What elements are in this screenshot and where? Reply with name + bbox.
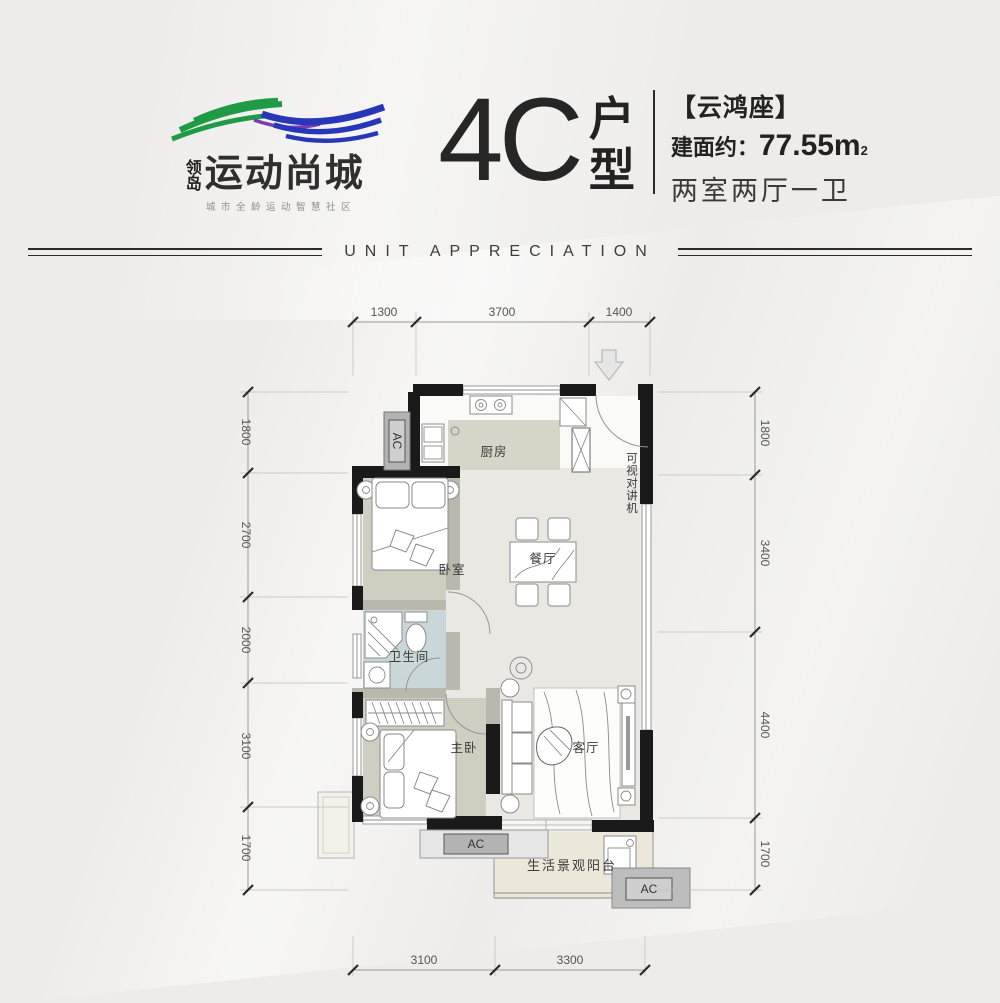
ac-label: AC (641, 882, 658, 896)
dim-left-4: 3100 (239, 733, 253, 760)
ac-label: AC (468, 837, 485, 851)
area-prefix: 建面约： (671, 130, 759, 162)
unit-title-block: 4C 户 型 【云鸿座】 建面约： 77.55m 2 两室两厅一卫 (438, 86, 868, 208)
intercom-label: 可视对讲机 (621, 452, 637, 532)
unit-info: 【云鸿座】 建面约： 77.55m 2 两室两厅一卫 (671, 86, 868, 208)
dim-right-1: 1800 (758, 420, 772, 447)
ac-platform-bottom-right: AC (612, 868, 690, 908)
dim-right-3: 4400 (758, 712, 772, 739)
balcony-sliding-door (500, 820, 592, 830)
label-master: 主卧 (450, 741, 477, 755)
dim-right: 1800 3400 4400 1700 (658, 387, 772, 895)
logo-name-text: 运动尚城 (205, 155, 365, 193)
area-superscript: 2 (861, 143, 868, 158)
dim-top-1: 1300 (371, 305, 398, 319)
logo-wave-icon (168, 92, 393, 148)
entry-arrow-icon (595, 350, 623, 380)
room-layout-desc: 两室两厅一卫 (671, 169, 868, 208)
banner-text: UNIT APPRECIATION (344, 243, 656, 261)
brand-logo: 领岛 运动尚城 城市全龄运动智慧社区 (168, 92, 408, 213)
ac-platform-bottom-left: AC (420, 830, 548, 858)
building-name: 【云鸿座】 (671, 88, 868, 124)
label-balcony: 生活景观阳台 (527, 858, 617, 873)
section-banner: UNIT APPRECIATION (0, 243, 1000, 261)
dim-left-1: 1800 (239, 419, 253, 446)
dim-bottom-2: 3300 (557, 953, 584, 967)
banner-line-left (28, 248, 322, 256)
dim-left-2: 2700 (239, 522, 253, 549)
unit-code: 4C (438, 86, 579, 195)
floor-plan: AC AC AC 厨房 卧室 餐厅 卫生间 主卧 客厅 生活景观阳台 (225, 290, 800, 990)
dim-right-4: 1700 (758, 841, 772, 868)
unit-type-label: 户 型 (589, 94, 635, 195)
label-bedroom: 卧室 (438, 562, 465, 577)
dim-right-2: 3400 (758, 540, 772, 567)
ac-label: AC (390, 433, 404, 450)
dim-bottom: 3100 3300 (348, 936, 650, 976)
dim-left-3: 2000 (239, 627, 253, 654)
label-bathroom: 卫生间 (389, 650, 430, 664)
label-living: 客厅 (572, 740, 599, 755)
label-dining: 餐厅 (529, 551, 556, 566)
dim-left-5: 1700 (239, 835, 253, 862)
label-kitchen: 厨房 (480, 444, 507, 459)
unit-type-char-bottom: 型 (589, 145, 635, 196)
unit-type-char-top: 户 (589, 94, 635, 145)
bedroom-furniture (357, 478, 459, 570)
dim-top-3: 1400 (606, 305, 633, 319)
logo-mark-text: 领岛 (182, 159, 199, 191)
area-value: 77.55m (759, 129, 861, 163)
banner-line-right (678, 248, 972, 256)
dim-top-2: 3700 (489, 305, 516, 319)
ac-platform-kitchen: AC (384, 412, 410, 470)
title-divider (653, 90, 655, 194)
dim-bottom-1: 3100 (411, 953, 438, 967)
page: 领岛 运动尚城 城市全龄运动智慧社区 4C 户 型 【云鸿座】 建面约： 77.… (0, 0, 1000, 1003)
area-line: 建面约： 77.55m 2 (671, 129, 868, 163)
logo-tagline: 城市全龄运动智慧社区 (206, 199, 408, 213)
